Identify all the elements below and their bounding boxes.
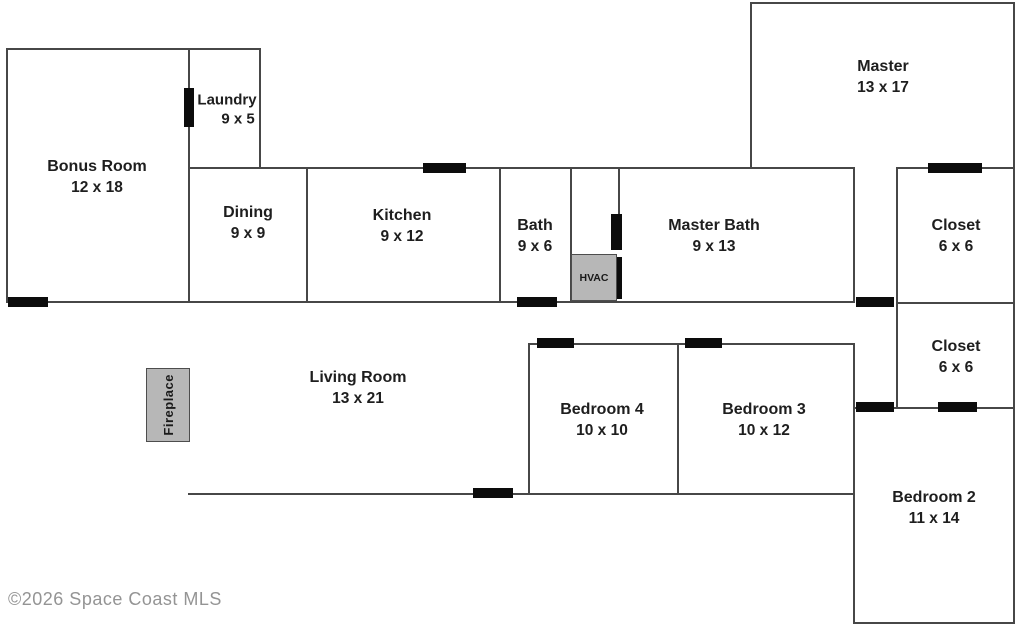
room-label-master: Master 13 x 17: [857, 56, 909, 98]
door-window-marker: [685, 338, 722, 348]
room-name: Bath: [517, 215, 553, 236]
room-label-dining: Dining 9 x 9: [223, 202, 273, 244]
room-name: Bedroom 3: [722, 399, 806, 420]
wall: [188, 167, 855, 169]
door-window-marker: [938, 402, 977, 412]
wall: [677, 343, 679, 495]
hvac-unit: HVAC: [571, 254, 617, 301]
room-dims-laundry: 9 x 5: [221, 111, 254, 128]
room-dims: 10 x 10: [560, 420, 644, 441]
room-dims: 6 x 6: [932, 357, 981, 378]
floor-plan: HVAC Fireplace Bonus Room 12 x 18 Laundr…: [0, 0, 1024, 630]
door-window-marker: [537, 338, 574, 348]
wall: [750, 2, 1015, 4]
door-window-marker: [928, 163, 982, 173]
room-dims: 9 x 12: [373, 226, 432, 247]
room-dims: 9 x 9: [223, 223, 273, 244]
room-dims: 13 x 21: [310, 388, 407, 409]
room-name: Dining: [223, 202, 273, 223]
wall: [6, 48, 261, 50]
room-dims: 6 x 6: [932, 236, 981, 257]
hvac-label: HVAC: [580, 272, 609, 284]
room-name: Closet: [932, 215, 981, 236]
wall: [853, 622, 1015, 624]
wall: [6, 301, 855, 303]
wall: [6, 48, 8, 303]
room-name: Bonus Room: [47, 156, 147, 177]
copyright-watermark: ©2026 Space Coast MLS: [8, 589, 222, 610]
room-dims: 11 x 14: [892, 508, 976, 529]
door-window-marker: [473, 488, 513, 498]
room-name: Bedroom 2: [892, 487, 976, 508]
door-window-marker: [423, 163, 466, 173]
wall: [618, 167, 620, 217]
room-label-living: Living Room 13 x 21: [310, 367, 407, 409]
room-label-bedroom-3: Bedroom 3 10 x 12: [722, 399, 806, 441]
door-window-marker: [856, 402, 894, 412]
room-label-bonus: Bonus Room 12 x 18: [47, 156, 147, 198]
door-window-marker: [856, 297, 894, 307]
room-label-closet-1: Closet 6 x 6: [932, 215, 981, 257]
room-dims: 13 x 17: [857, 77, 909, 98]
wall: [499, 167, 501, 303]
room-dims: 10 x 12: [722, 420, 806, 441]
room-label-bath: Bath 9 x 6: [517, 215, 553, 257]
wall: [188, 493, 855, 495]
room-label-closet-2: Closet 6 x 6: [932, 336, 981, 378]
room-name: Bedroom 4: [560, 399, 644, 420]
wall: [188, 48, 190, 303]
room-label-bedroom-4: Bedroom 4 10 x 10: [560, 399, 644, 441]
room-name: Kitchen: [373, 205, 432, 226]
wall: [853, 167, 855, 303]
wall: [1013, 2, 1015, 624]
wall: [259, 48, 261, 169]
room-label-master-bath: Master Bath 9 x 13: [668, 215, 760, 257]
wall: [306, 167, 308, 303]
wall: [896, 302, 1015, 304]
room-label-bedroom-2: Bedroom 2 11 x 14: [892, 487, 976, 529]
room-name: Living Room: [310, 367, 407, 388]
room-name: Master Bath: [668, 215, 760, 236]
room-label-kitchen: Kitchen 9 x 12: [373, 205, 432, 247]
room-name: Closet: [932, 336, 981, 357]
wall: [528, 343, 530, 495]
fireplace-label: Fireplace: [161, 374, 176, 436]
door-window-marker: [8, 297, 48, 307]
wall: [853, 343, 855, 624]
room-label-laundry: Laundry: [197, 92, 256, 109]
room-name: Master: [857, 56, 909, 77]
door-window-marker: [611, 214, 622, 250]
room-dims: 9 x 13: [668, 236, 760, 257]
door-window-marker: [517, 297, 557, 307]
room-dims: 12 x 18: [47, 177, 147, 198]
fireplace: Fireplace: [146, 368, 190, 442]
wall: [896, 167, 898, 409]
room-dims: 9 x 6: [517, 236, 553, 257]
door-window-marker: [184, 88, 194, 127]
wall: [750, 2, 752, 169]
